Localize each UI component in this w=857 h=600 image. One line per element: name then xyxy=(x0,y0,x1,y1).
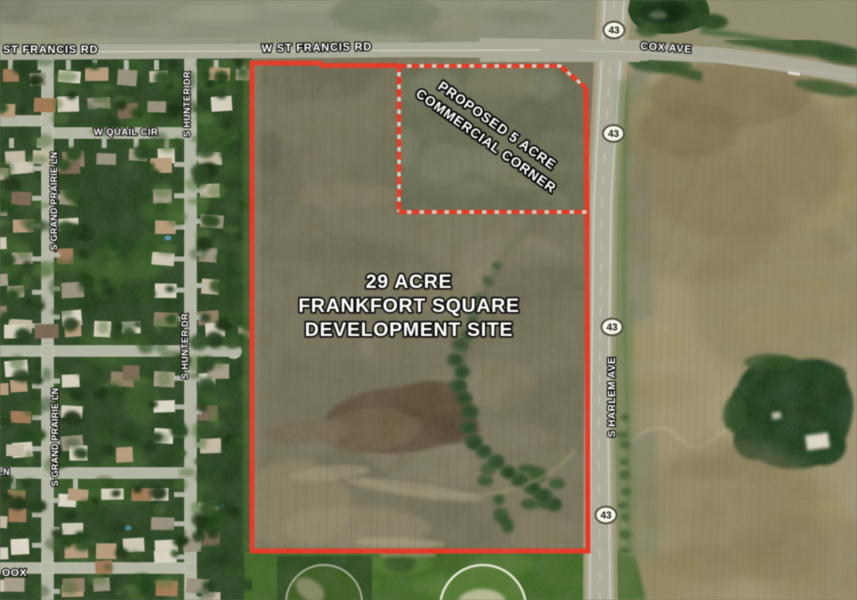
svg-text:43: 43 xyxy=(600,511,612,522)
svg-text:43: 43 xyxy=(608,129,620,140)
svg-text:S HUNTER DR: S HUNTER DR xyxy=(182,71,192,137)
svg-text:DEVELOPMENT SITE: DEVELOPMENT SITE xyxy=(305,319,513,341)
svg-text:W QUAIL CIR: W QUAIL CIR xyxy=(94,127,158,138)
svg-text:43: 43 xyxy=(606,323,618,334)
svg-text:29 ACRE: 29 ACRE xyxy=(366,271,453,293)
svg-text:43: 43 xyxy=(608,26,620,37)
svg-text:FRANKFORT SQUARE: FRANKFORT SQUARE xyxy=(298,295,519,317)
svg-text:W ST FRANCIS RD: W ST FRANCIS RD xyxy=(0,44,98,56)
svg-text:S HUNTER DR: S HUNTER DR xyxy=(180,313,190,379)
svg-text:W ST FRANCIS RD: W ST FRANCIS RD xyxy=(262,41,373,55)
svg-text:S GRAND PRAIRIE LN: S GRAND PRAIRIE LN xyxy=(50,388,60,487)
svg-text:OOX: OOX xyxy=(2,567,27,579)
svg-text:S HARLEM AVE: S HARLEM AVE xyxy=(607,357,618,437)
svg-text:LN: LN xyxy=(0,467,10,477)
svg-text:S GRAND PRAIRIE LN: S GRAND PRAIRIE LN xyxy=(49,152,59,251)
